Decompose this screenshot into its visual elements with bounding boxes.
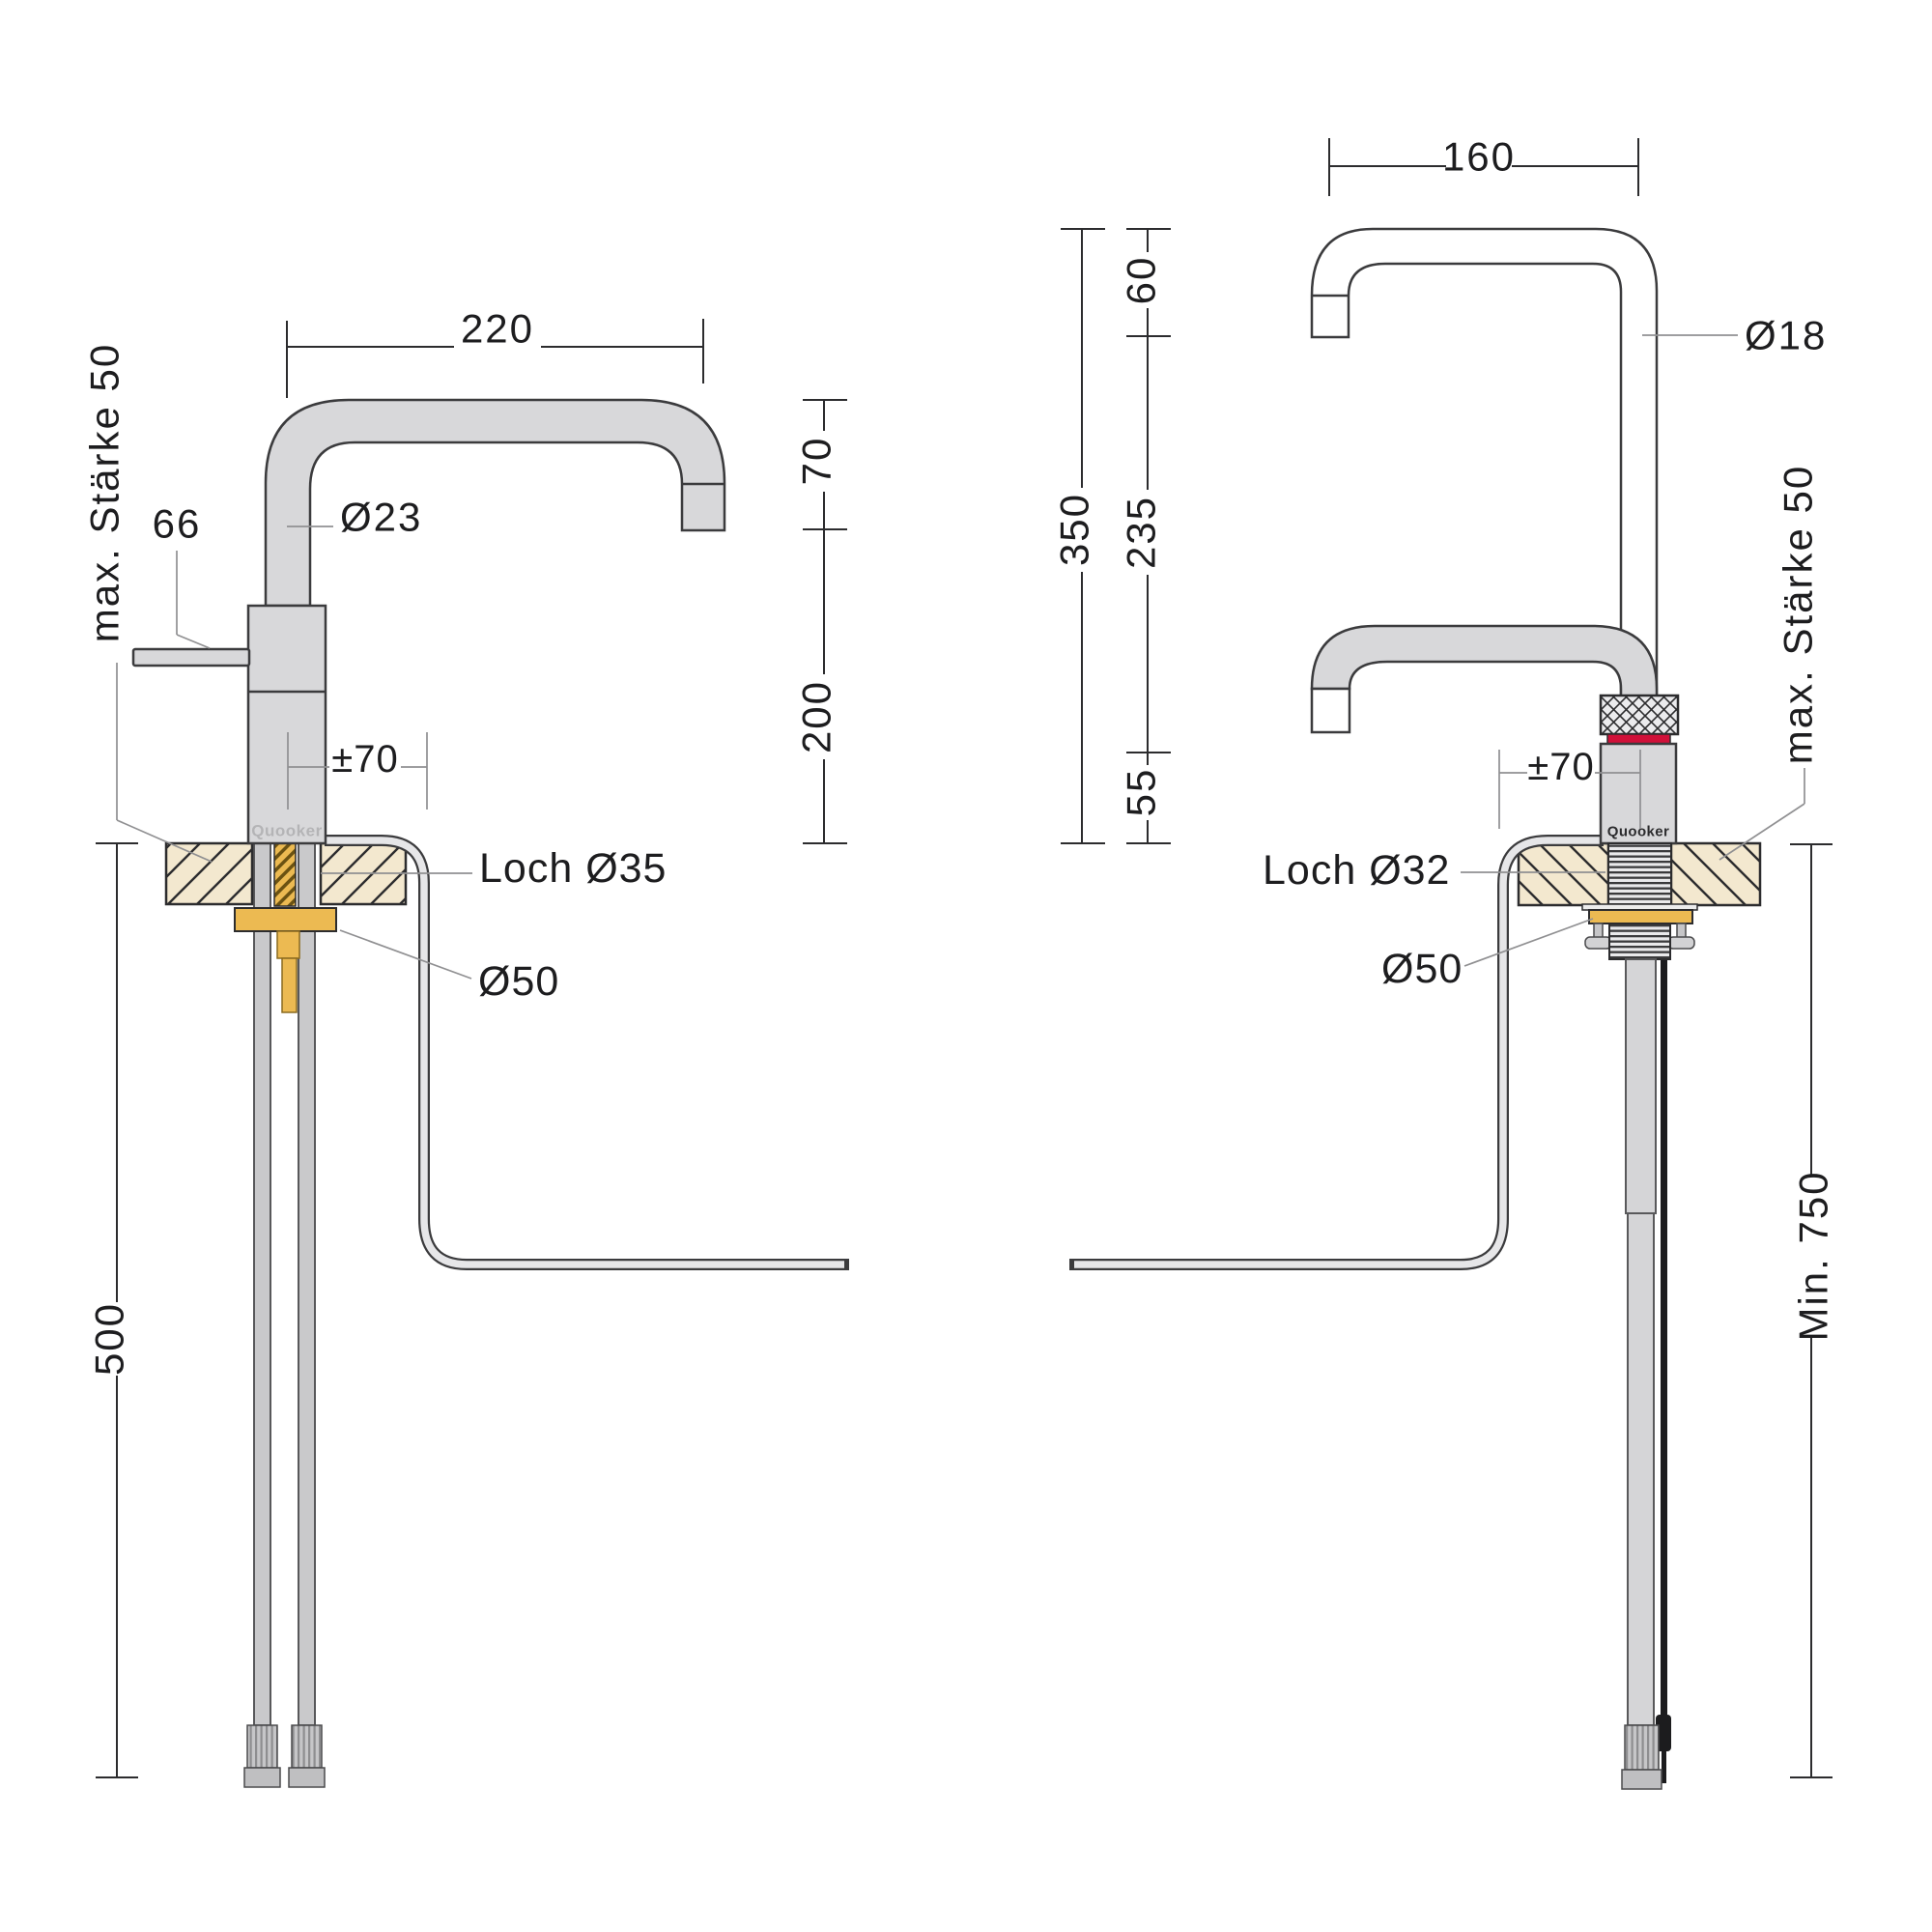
right-dim-total-height: 350: [1052, 493, 1097, 566]
left-dim-hose-length: 500: [87, 1302, 132, 1376]
left-dim-swivel-offset: ±70: [331, 738, 398, 781]
right-dim-hose-min-length: Min. 750: [1791, 1170, 1836, 1341]
right-mounting-screw-left: [1585, 923, 1611, 949]
right-mounting-screw-right: [1668, 923, 1694, 949]
right-cable: [1661, 959, 1667, 1715]
left-hose-1: [254, 843, 270, 1725]
left-label-handle-length: 66: [153, 501, 202, 547]
left-dim-reach: 220: [461, 306, 534, 352]
right-label-pipe-diameter: Ø18: [1745, 313, 1827, 358]
right-label-worktop-thickness: max. Stärke 50: [1776, 465, 1821, 764]
right-dim-segment-top: 60: [1119, 256, 1164, 305]
right-tap-view: Quooker: [1069, 229, 1760, 1789]
right-folded-tip: [1312, 689, 1350, 732]
right-dim-segment-middle: 235: [1119, 496, 1164, 569]
left-quooker-logo: Quooker: [251, 822, 322, 840]
right-brass-nut: [1589, 910, 1692, 923]
right-hose-lower: [1628, 1213, 1654, 1725]
left-brass-block: [277, 931, 299, 958]
right-label-hole: Loch Ø32: [1263, 847, 1450, 894]
left-hose-2: [298, 843, 315, 1725]
left-hose-connector-1: [244, 1725, 280, 1787]
right-dim-segment-bottom: 55: [1119, 768, 1164, 817]
technical-drawing-page: Quooker 220 70 200: [0, 0, 1932, 1932]
left-dim-spout-height: 200: [794, 680, 839, 753]
right-spout-folded: [1312, 626, 1657, 696]
right-label-flange-diameter: Ø50: [1381, 946, 1463, 992]
right-worktop-block-right: [1671, 843, 1760, 905]
right-dim-swivel-offset: ±70: [1527, 746, 1594, 788]
right-lower-thread: [1609, 923, 1670, 959]
left-dim-spout-drop: 70: [794, 437, 839, 486]
left-hose-connector-2: [289, 1725, 325, 1787]
left-tap-handle: [133, 649, 249, 666]
left-threaded-rod: [274, 843, 296, 906]
left-spout: [266, 400, 724, 606]
left-label-pipe-diameter: Ø23: [340, 495, 422, 540]
left-label-flange-diameter: Ø50: [478, 958, 559, 1005]
right-quooker-logo: Quooker: [1607, 824, 1669, 840]
left-tap-view: Quooker: [133, 400, 849, 1787]
left-worktop-block-left: [166, 843, 252, 904]
right-dim-reach: 160: [1442, 134, 1516, 180]
right-hose-upper: [1626, 959, 1656, 1213]
left-brass-rod: [282, 958, 297, 1012]
right-hose-connector: [1622, 1725, 1662, 1789]
left-brass-nut: [235, 908, 336, 931]
right-knurled-knob: [1601, 696, 1678, 734]
left-tap-body: [248, 606, 326, 843]
right-worktop-block-left: [1519, 843, 1608, 905]
left-label-worktop-thickness: max. Stärke 50: [82, 343, 128, 642]
left-label-hole: Loch Ø35: [479, 845, 667, 892]
right-threaded-shank: [1608, 843, 1671, 905]
tap-spec-drawing: Quooker 220 70 200: [0, 0, 1932, 1932]
right-red-ring: [1607, 734, 1670, 744]
